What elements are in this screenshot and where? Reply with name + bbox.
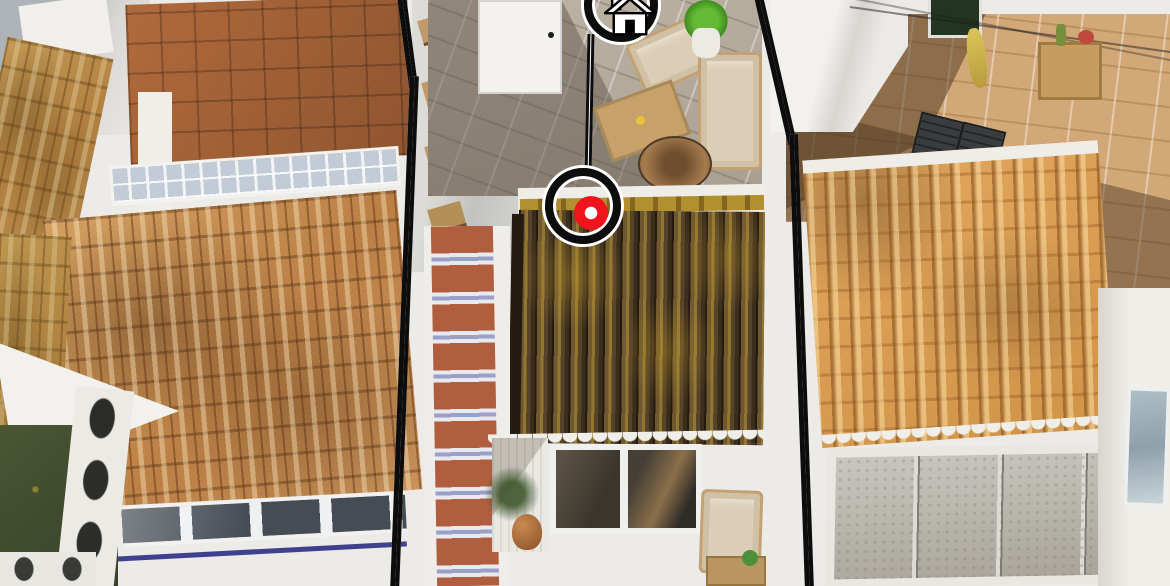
property-highlight-overlay [0, 0, 1170, 586]
property-outline-left-lower [390, 76, 419, 586]
marker-dot[interactable] [574, 196, 608, 230]
home-icon[interactable] [604, 0, 656, 40]
aerial-photo [0, 0, 1170, 586]
property-outline-left-upper [397, 0, 418, 88]
property-outline-right-lower [789, 134, 814, 586]
property-outline-right-upper [754, 0, 797, 145]
marker-connector-line [585, 34, 595, 176]
